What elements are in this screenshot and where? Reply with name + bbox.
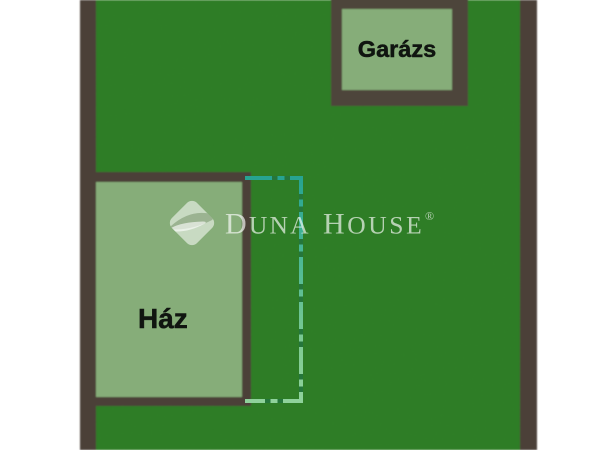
svg-text:Ház: Ház (138, 303, 188, 334)
svg-text:DUNA: DUNA (225, 208, 311, 241)
svg-text:Garázs: Garázs (358, 36, 436, 62)
svg-text:®: ® (425, 209, 434, 223)
svg-text:HOUSE: HOUSE (323, 208, 424, 241)
